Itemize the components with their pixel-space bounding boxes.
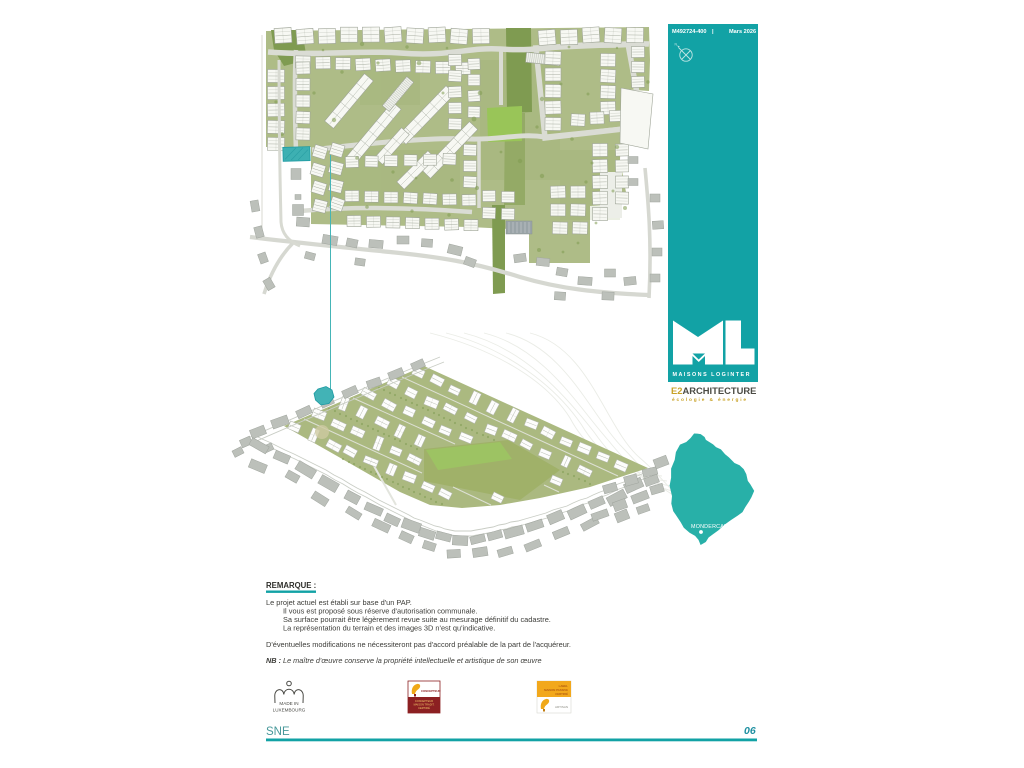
svg-text:06: 06 (744, 725, 756, 737)
svg-text:CONCEPTEUR: CONCEPTEUR (415, 699, 433, 703)
svg-text:La représentation du terrain e: La représentation du terrain et des imag… (283, 624, 495, 633)
svg-text:CERTIFIÉ: CERTIFIÉ (555, 691, 568, 696)
svg-text:CONCEPTEUR: CONCEPTEUR (421, 689, 441, 693)
svg-text:ARTISAN: ARTISAN (555, 705, 568, 709)
svg-text:NB : Le maître d'œuvre conserv: NB : Le maître d'œuvre conserve la propr… (266, 656, 542, 665)
svg-text:Mars 2026: Mars 2026 (729, 29, 756, 35)
svg-text:MONDERCANGE: MONDERCANGE (691, 524, 737, 530)
svg-text:D'éventuelles modifications ne: D'éventuelles modifications ne nécessite… (266, 640, 571, 649)
svg-text:MADE IN: MADE IN (279, 701, 298, 706)
svg-text:MAISON TRADIT.: MAISON TRADIT. (414, 703, 435, 707)
svg-text:E2ARCHITECTURE: E2ARCHITECTURE (671, 385, 756, 396)
svg-text:MAISONS LOGINTER: MAISONS LOGINTER (673, 372, 752, 378)
svg-text:REMARQUE :: REMARQUE : (266, 581, 316, 590)
svg-text:SNE: SNE (266, 726, 290, 738)
svg-text:LUXEMBOURG: LUXEMBOURG (273, 708, 306, 713)
svg-text:écologie & énergie: écologie & énergie (672, 397, 748, 403)
svg-text:M492724-400: M492724-400 (672, 29, 707, 35)
